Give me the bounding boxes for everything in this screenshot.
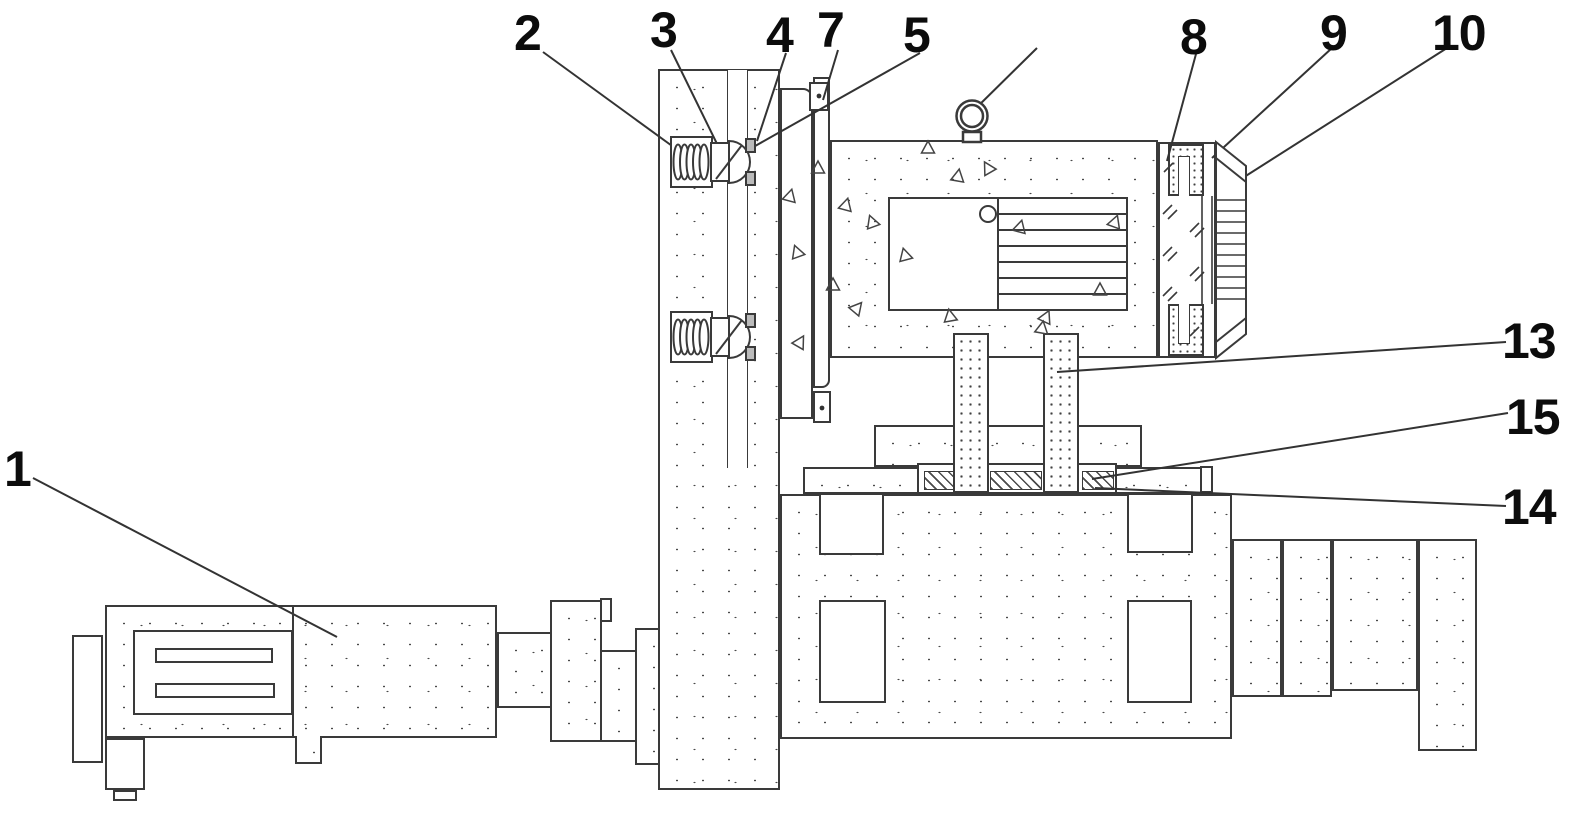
base-opening-top-right — [1127, 495, 1193, 553]
left-motor-foot-pad — [113, 790, 137, 801]
slider-plate — [780, 88, 813, 419]
fin-block — [1216, 142, 1246, 358]
column-guide-channel — [727, 70, 748, 468]
rail-slider-block-mid — [990, 471, 1042, 490]
clamp-clip-bottom — [813, 391, 831, 423]
spindle-motor-body — [830, 140, 1158, 358]
rail-slider-block-left — [924, 471, 954, 490]
base-opening-bottom-left — [819, 600, 886, 703]
callout-3: 3 — [650, 5, 677, 55]
rail-end-stop — [1200, 466, 1213, 493]
callout-1: 1 — [4, 444, 31, 494]
callout-8: 8 — [1180, 12, 1207, 62]
base-opening-top-left — [819, 495, 884, 555]
right-block-b — [1282, 539, 1332, 697]
column-stand — [658, 69, 780, 790]
left-motor-bottom-tab — [295, 736, 322, 764]
left-motor-foot — [105, 738, 145, 790]
coupling-tab — [600, 598, 612, 622]
clamp-bar — [813, 77, 830, 388]
leader-ring — [969, 48, 1037, 115]
callout-5: 5 — [903, 10, 930, 60]
callout-4: 4 — [766, 10, 793, 60]
lifting-ring — [957, 101, 988, 143]
clamp-clip-top — [809, 82, 829, 111]
figure-canvas: 1 2 3 4 7 5 8 9 10 13 15 14 — [0, 0, 1593, 825]
callout-9: 9 — [1320, 8, 1347, 58]
drive-shaft-1 — [497, 632, 552, 708]
vent-slot-bottom — [155, 683, 275, 698]
callout-13: 13 — [1502, 316, 1556, 366]
drive-shaft-2 — [600, 650, 637, 742]
support-post-left — [953, 333, 989, 493]
coupling-block — [550, 600, 602, 742]
right-foot-block — [1418, 539, 1477, 751]
right-block-c — [1332, 539, 1418, 691]
callout-15: 15 — [1506, 392, 1560, 442]
guide-rail — [917, 463, 1117, 494]
callout-14: 14 — [1502, 482, 1556, 532]
cap-bracket-top-slot — [1178, 156, 1190, 196]
cap-bracket-bottom-slot — [1178, 304, 1190, 344]
base-opening-bottom-right — [1127, 600, 1192, 703]
support-post-right — [1043, 333, 1079, 493]
rail-slider-block-right — [1082, 471, 1114, 490]
callout-10: 10 — [1432, 8, 1486, 58]
right-block-a — [1232, 539, 1282, 697]
callout-7: 7 — [817, 5, 844, 55]
leader-10 — [1230, 48, 1447, 186]
callout-2: 2 — [514, 8, 541, 58]
leader-9 — [1212, 48, 1332, 158]
left-motor-end-cap — [72, 635, 103, 763]
vent-slot-top — [155, 648, 273, 663]
vent-panel — [133, 630, 293, 715]
upper-plate — [874, 425, 1142, 467]
